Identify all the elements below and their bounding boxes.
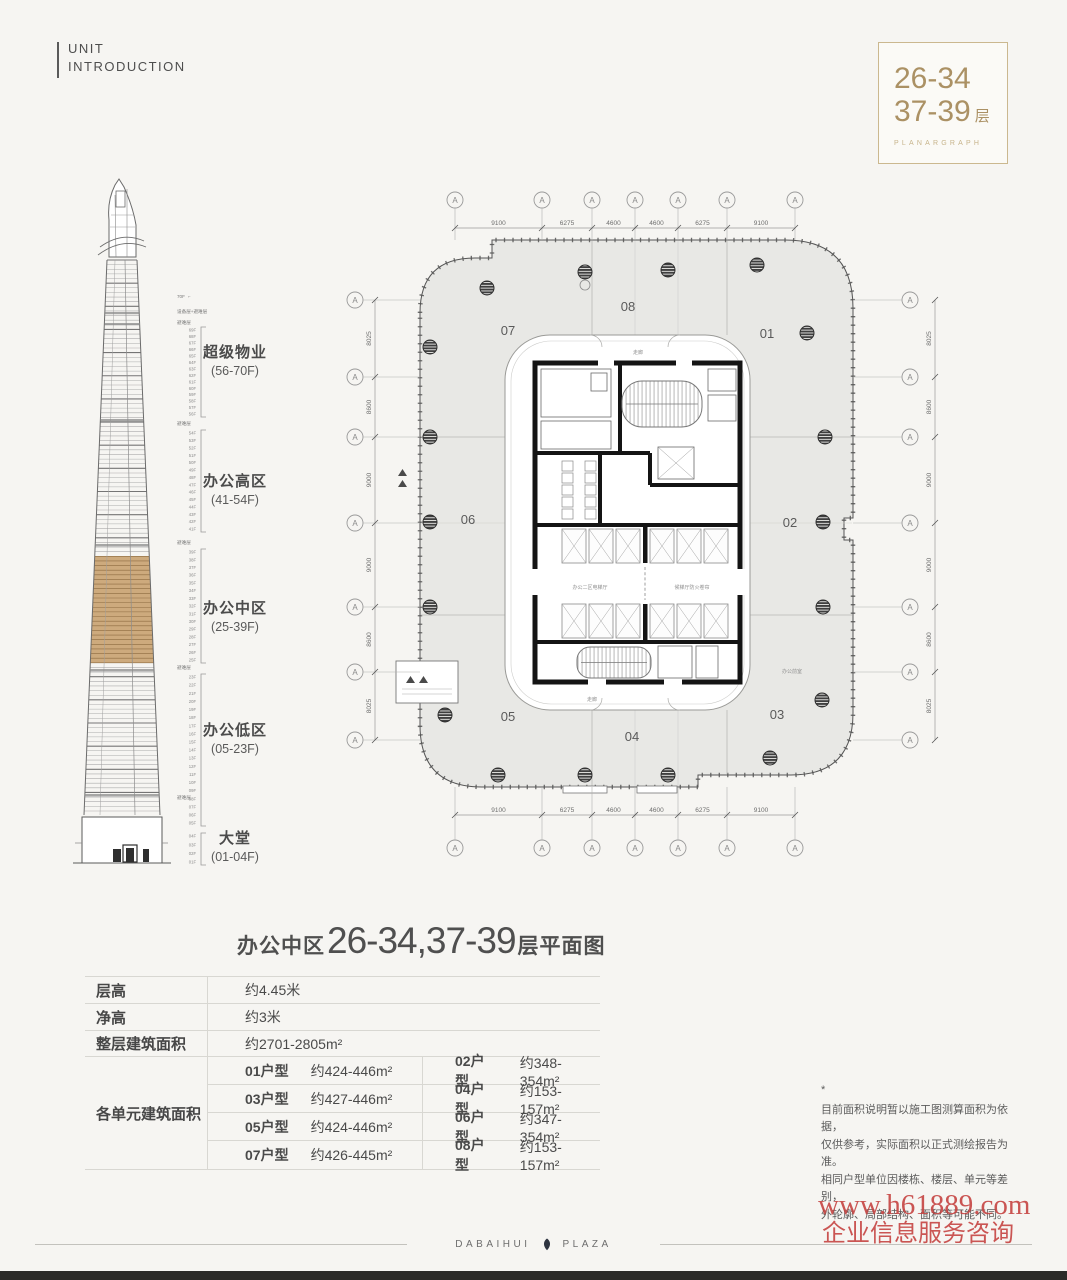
dimension-label: 8025 xyxy=(366,331,373,346)
unit-area: 约153-157m² xyxy=(520,1137,600,1173)
axis-marker-letter: A xyxy=(907,668,913,677)
floor-tick-label: 53F xyxy=(189,438,197,443)
core-label-walkway-top: 走廊 xyxy=(633,349,643,356)
column xyxy=(438,708,452,722)
column xyxy=(578,768,592,782)
dimension-label: 8025 xyxy=(926,698,933,713)
column xyxy=(423,600,437,614)
axis-marker-letter: A xyxy=(352,603,358,612)
unit-label-01: 01 xyxy=(760,326,774,341)
floor-tick-label: 51F xyxy=(189,453,197,458)
plan-title-suffix: 层平面图 xyxy=(518,930,606,960)
watermark-url: www.h61889.com xyxy=(818,1190,1018,1220)
axis-marker-letter: A xyxy=(792,844,798,853)
axis-marker-letter: A xyxy=(907,433,913,442)
axis-marker-letter: A xyxy=(352,433,358,442)
kicker-line-1: UNIT xyxy=(68,40,186,58)
floor-tick-label: 07F xyxy=(189,804,197,809)
dimension-label: 9000 xyxy=(366,472,373,487)
brand-name-left: DABAIHUI xyxy=(455,1239,530,1250)
floor-tick-label: 06F xyxy=(189,812,197,817)
column xyxy=(661,768,675,782)
plan-title-prefix: 办公中区 xyxy=(237,930,325,960)
spec-units-label: 各单元建筑面积 xyxy=(85,1057,208,1169)
floor-tick-label: 19F xyxy=(189,707,197,712)
column xyxy=(423,515,437,529)
core-label-fire-curtain: 候梯厅防火卷帘 xyxy=(674,584,709,591)
floor-tick-label: 61F xyxy=(189,379,197,384)
axis-marker-letter: A xyxy=(352,519,358,528)
floor-tick-label: 13F xyxy=(189,756,197,761)
floor-tick-label: 59F xyxy=(189,392,197,397)
floor-tick-label: 05F xyxy=(189,821,197,826)
plan-drawing: 07 08 01 06 02 05 04 03 办公二区电梯厅 候梯厅防火卷帘 … xyxy=(340,185,970,885)
zone-name: 超级物业 xyxy=(180,341,290,362)
axis-marker-letter: A xyxy=(907,519,913,528)
core-label-elevator-hall: 办公二区电梯厅 xyxy=(572,584,607,591)
floor-tick-label: 35F xyxy=(189,580,197,585)
zone-name: 办公高区 xyxy=(180,470,290,491)
column xyxy=(491,768,505,782)
axis-marker-letter: A xyxy=(632,196,638,205)
floor-tick-label: 22F xyxy=(189,683,197,688)
brochure-page: UNIT INTRODUCTION 26-34 37-39层 PLANARGRA… xyxy=(0,0,1067,1280)
axis-marker-letter: A xyxy=(452,844,458,853)
dimension-label: 6275 xyxy=(560,807,575,814)
note-line: 仅供参考，实际面积以正式测绘报告为准。 xyxy=(821,1137,1021,1172)
spec-row-label: 层高 xyxy=(85,977,208,1004)
axis-marker-letter: A xyxy=(352,296,358,305)
zone-label-lobby: 大堂 (01-04F) xyxy=(180,827,290,864)
column xyxy=(661,263,675,277)
zone-name: 办公低区 xyxy=(180,719,290,740)
column xyxy=(816,515,830,529)
column xyxy=(578,265,592,279)
axis-marker-letter: A xyxy=(539,196,545,205)
column xyxy=(818,430,832,444)
spec-row-value: 约3米 xyxy=(208,1004,600,1031)
core-label-walkway-bottom: 走廊 xyxy=(587,696,597,703)
tower-crown xyxy=(98,179,146,257)
floor-tick-label: 21F xyxy=(189,691,197,696)
floor-range-badge: 26-34 37-39层 PLANARGRAPH xyxy=(878,42,1008,164)
axis-marker-letter: A xyxy=(675,196,681,205)
footer: DABAIHUI PLAZA xyxy=(0,1238,1067,1251)
tower-equipment-label: 设备层+避难层 xyxy=(177,308,208,315)
zone-range: (56-70F) xyxy=(180,364,290,378)
floor-tick-label: 25F xyxy=(189,658,197,663)
floor-tick-label: 37F xyxy=(189,565,197,570)
unit-no: 07户型 xyxy=(245,1145,289,1165)
floor-tick-label: 23F xyxy=(189,675,197,680)
kicker-bar xyxy=(57,42,59,78)
column xyxy=(750,258,764,272)
axis-marker-letter: A xyxy=(352,736,358,745)
floor-tick-label: 09F xyxy=(189,788,197,793)
axis-marker-letter: A xyxy=(907,373,913,382)
brand-name-right: PLAZA xyxy=(563,1239,612,1250)
zone-label-low: 办公低区 (05-23F) xyxy=(180,719,290,756)
dimension-label: 8025 xyxy=(926,331,933,346)
floor-tick-label: 10F xyxy=(189,780,197,785)
note-line: 目前面积说明暂以施工图测算面积为依据， xyxy=(821,1102,1021,1137)
tower-refuge-label: 避难层 xyxy=(177,420,191,427)
axis-marker-letter: A xyxy=(632,844,638,853)
floor-tick-label: 41F xyxy=(189,527,197,532)
tower-refuge-label: 避难层 xyxy=(177,664,191,671)
zone-name: 大堂 xyxy=(180,827,290,848)
dimension-label: 9100 xyxy=(754,807,769,814)
unit-area: 约424-446m² xyxy=(311,1117,393,1137)
column xyxy=(480,281,494,295)
unit-introduction-kicker: UNIT INTRODUCTION xyxy=(57,40,186,78)
floor-plan: 07 08 01 06 02 05 04 03 办公二区电梯厅 候梯厅防火卷帘 … xyxy=(340,185,970,885)
floor-tick-label: 20F xyxy=(189,699,197,704)
axis-marker-letter: A xyxy=(907,296,913,305)
column xyxy=(423,430,437,444)
floor-tick-label: 68F xyxy=(189,334,197,339)
floor-tick-label: 58F xyxy=(189,399,197,404)
floor-tick-label: 69F xyxy=(189,328,197,333)
axis-marker-letter: A xyxy=(539,844,545,853)
dimension-label: 9100 xyxy=(754,220,769,227)
tower-roof-tick: ⌐ xyxy=(188,294,191,299)
dimension-label: 8600 xyxy=(926,399,933,414)
zone-range: (01-04F) xyxy=(180,850,290,864)
unit-area-cell: 07户型 约426-445m² xyxy=(208,1141,422,1169)
axis-marker-letter: A xyxy=(724,196,730,205)
badge-floor-suffix: 层 xyxy=(975,108,990,125)
dimension-label: 4600 xyxy=(649,220,664,227)
axis-marker-letter: A xyxy=(352,668,358,677)
dimension-label: 9000 xyxy=(926,557,933,572)
spec-table: 层高 约4.45米 净高 约3米 整层建筑面积 约2701-2805m² 各单元… xyxy=(85,976,600,1170)
tower-refuge-label: 避难层 xyxy=(177,319,191,326)
unit-area-cell: 08户型 约153-157m² xyxy=(422,1141,600,1169)
floor-tick-label: 28F xyxy=(189,634,197,639)
dimension-label: 8600 xyxy=(366,399,373,414)
column xyxy=(800,326,814,340)
floor-tick-label: 54F xyxy=(189,431,197,436)
unit-label-06: 06 xyxy=(461,512,475,527)
floor-tick-label: 50F xyxy=(189,460,197,465)
dimension-label: 6275 xyxy=(695,807,710,814)
axis-marker-letter: A xyxy=(589,196,595,205)
tower-roof-label: 70F xyxy=(177,294,185,299)
unit-area: 约424-446m² xyxy=(311,1061,393,1081)
unit-no: 08户型 xyxy=(455,1135,498,1175)
tower-highlight-band xyxy=(90,556,153,663)
page-bottom-strip xyxy=(0,1271,1067,1280)
axis-marker-letter: A xyxy=(452,196,458,205)
dimension-label: 6275 xyxy=(560,220,575,227)
floor-tick-label: 57F xyxy=(189,405,197,410)
axis-marker-letter: A xyxy=(907,603,913,612)
floor-tick-label: 60F xyxy=(189,386,197,391)
floor-tick-label: 08F xyxy=(189,796,197,801)
brand-logo: DABAIHUI PLAZA xyxy=(455,1238,611,1251)
floor-tick-label: 34F xyxy=(189,588,197,593)
dimension-label: 4600 xyxy=(606,220,621,227)
dimension-label: 9000 xyxy=(926,472,933,487)
unit-label-02: 02 xyxy=(783,515,797,530)
floor-tick-label: 27F xyxy=(189,642,197,647)
badge-floors-2-num: 37-39 xyxy=(894,95,971,128)
unit-area: 约427-446m² xyxy=(311,1089,393,1109)
dimension-label: 4600 xyxy=(649,807,664,814)
column xyxy=(816,600,830,614)
badge-subtitle: PLANARGRAPH xyxy=(894,140,1007,147)
floor-tick-label: 38F xyxy=(189,557,197,562)
unit-label-05: 05 xyxy=(501,709,515,724)
axis-marker-letter: A xyxy=(907,736,913,745)
zone-name: 办公中区 xyxy=(180,597,290,618)
axis-marker-letter: A xyxy=(792,196,798,205)
unit-label-08: 08 xyxy=(621,299,635,314)
tower-base xyxy=(73,817,171,863)
note-mark: * xyxy=(821,1082,1021,1100)
tower-elevation: 70F ⌐ 设备层+避难层 避难层 避难层 避难层 避难层 避难层 69F68F… xyxy=(55,165,325,880)
plan-title-numbers: 26-34,37-39 xyxy=(327,920,516,962)
dimension-label: 9000 xyxy=(366,557,373,572)
floor-tick-label: 56F xyxy=(189,412,197,417)
kicker-line-2: INTRODUCTION xyxy=(68,58,186,76)
unit-no: 01户型 xyxy=(245,1061,289,1081)
floor-tick-label: 42F xyxy=(189,519,197,524)
unit-label-04: 04 xyxy=(625,729,639,744)
unit-label-07: 07 xyxy=(501,323,515,338)
zone-range: (41-54F) xyxy=(180,493,290,507)
axis-marker-letter: A xyxy=(675,844,681,853)
zone-range: (05-23F) xyxy=(180,742,290,756)
floor-tick-label: 12F xyxy=(189,764,197,769)
dimension-label: 9100 xyxy=(491,807,506,814)
dimension-label: 8600 xyxy=(366,632,373,647)
unit-area: 约426-445m² xyxy=(311,1145,393,1165)
unit-no: 05户型 xyxy=(245,1117,289,1137)
column xyxy=(763,751,777,765)
tower-drawing: 70F ⌐ 设备层+避难层 避难层 避难层 避难层 避难层 避难层 69F68F… xyxy=(55,165,325,880)
dimension-label: 8600 xyxy=(926,632,933,647)
footer-rule-right xyxy=(660,1244,1032,1245)
zone-label-super: 超级物业 (56-70F) xyxy=(180,341,290,378)
plan-title: 办公中区 26-34,37-39 层平面图 xyxy=(237,920,606,962)
dimension-label: 4600 xyxy=(606,807,621,814)
badge-floors-1: 26-34 xyxy=(894,63,1007,95)
unit-area-cell: 01户型 约424-446m² xyxy=(208,1057,422,1085)
tower-refuge-bands xyxy=(85,312,159,796)
leaf-icon xyxy=(541,1238,553,1251)
zone-label-mid: 办公中区 (25-39F) xyxy=(180,597,290,634)
footer-rule-left xyxy=(35,1244,407,1245)
floor-tick-label: 39F xyxy=(189,550,197,555)
floor-tick-label: 26F xyxy=(189,650,197,655)
badge-floors-2: 37-39层 xyxy=(894,95,1007,134)
spec-row-label: 整层建筑面积 xyxy=(85,1031,208,1057)
dimension-label: 9100 xyxy=(491,220,506,227)
axis-marker-letter: A xyxy=(724,844,730,853)
dimension-label: 8025 xyxy=(366,698,373,713)
floor-tick-label: 36F xyxy=(189,573,197,578)
unit-area-cell: 05户型 约424-446m² xyxy=(208,1113,422,1141)
floor-tick-label: 52F xyxy=(189,445,197,450)
zone-label-high: 办公高区 (41-54F) xyxy=(180,470,290,507)
unit-label-03: 03 xyxy=(770,707,784,722)
unit-area-cell: 03户型 约427-446m² xyxy=(208,1085,422,1113)
column xyxy=(423,340,437,354)
tower-refuge-label: 避难层 xyxy=(177,539,191,546)
floor-tick-label: 11F xyxy=(189,772,196,777)
floor-tick-label: 43F xyxy=(189,512,197,517)
dimension-label: 6275 xyxy=(695,220,710,227)
axis-marker-letter: A xyxy=(589,844,595,853)
column xyxy=(815,693,829,707)
zone-range: (25-39F) xyxy=(180,620,290,634)
unit-no: 03户型 xyxy=(245,1089,289,1109)
core-label-vestibule: 办公前室 xyxy=(782,668,802,675)
kicker-text: UNIT INTRODUCTION xyxy=(68,40,186,78)
spec-row-label: 净高 xyxy=(85,1004,208,1031)
axis-marker-letter: A xyxy=(352,373,358,382)
spec-row-value: 约4.45米 xyxy=(208,977,600,1004)
